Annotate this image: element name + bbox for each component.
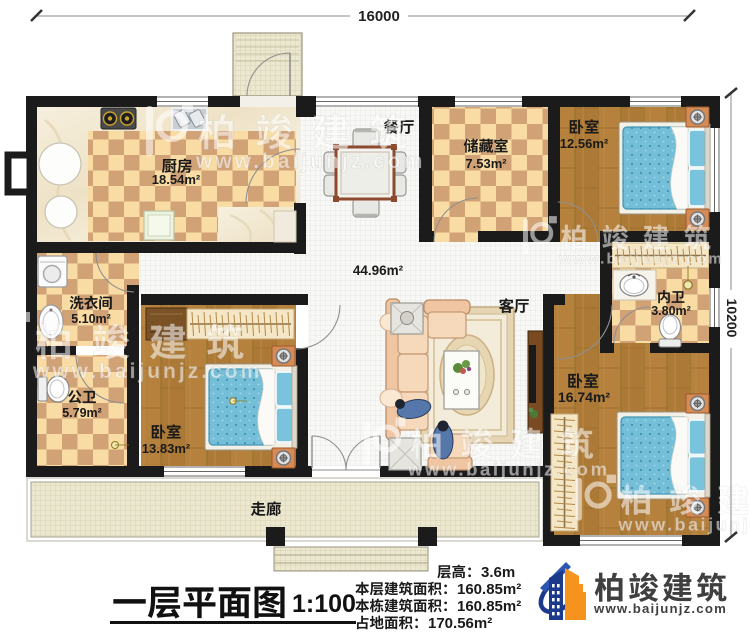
svg-text:160.85m²: 160.85m² (457, 581, 521, 598)
svg-text:16.74m²: 16.74m² (558, 389, 610, 405)
svg-text:160.85m²: 160.85m² (457, 598, 521, 615)
svg-text:7.53m²: 7.53m² (465, 156, 507, 171)
svg-text:3.80m²: 3.80m² (651, 304, 691, 318)
svg-text:170.56m²: 170.56m² (428, 615, 492, 632)
svg-text:16000: 16000 (358, 8, 400, 25)
svg-text:18.54m²: 18.54m² (152, 172, 201, 187)
svg-text:1:100: 1:100 (292, 590, 356, 618)
svg-text:12.56m²: 12.56m² (560, 136, 609, 151)
svg-text:3.6m: 3.6m (481, 564, 515, 581)
svg-text:13.83m²: 13.83m² (142, 441, 191, 456)
svg-text:5.79m²: 5.79m² (62, 406, 102, 420)
svg-text:5.10m²: 5.10m² (71, 312, 111, 326)
svg-text:www.baijunjz.com: www.baijunjz.com (593, 601, 727, 616)
svg-text:10200: 10200 (724, 299, 740, 338)
svg-text:44.96m²: 44.96m² (353, 263, 404, 278)
